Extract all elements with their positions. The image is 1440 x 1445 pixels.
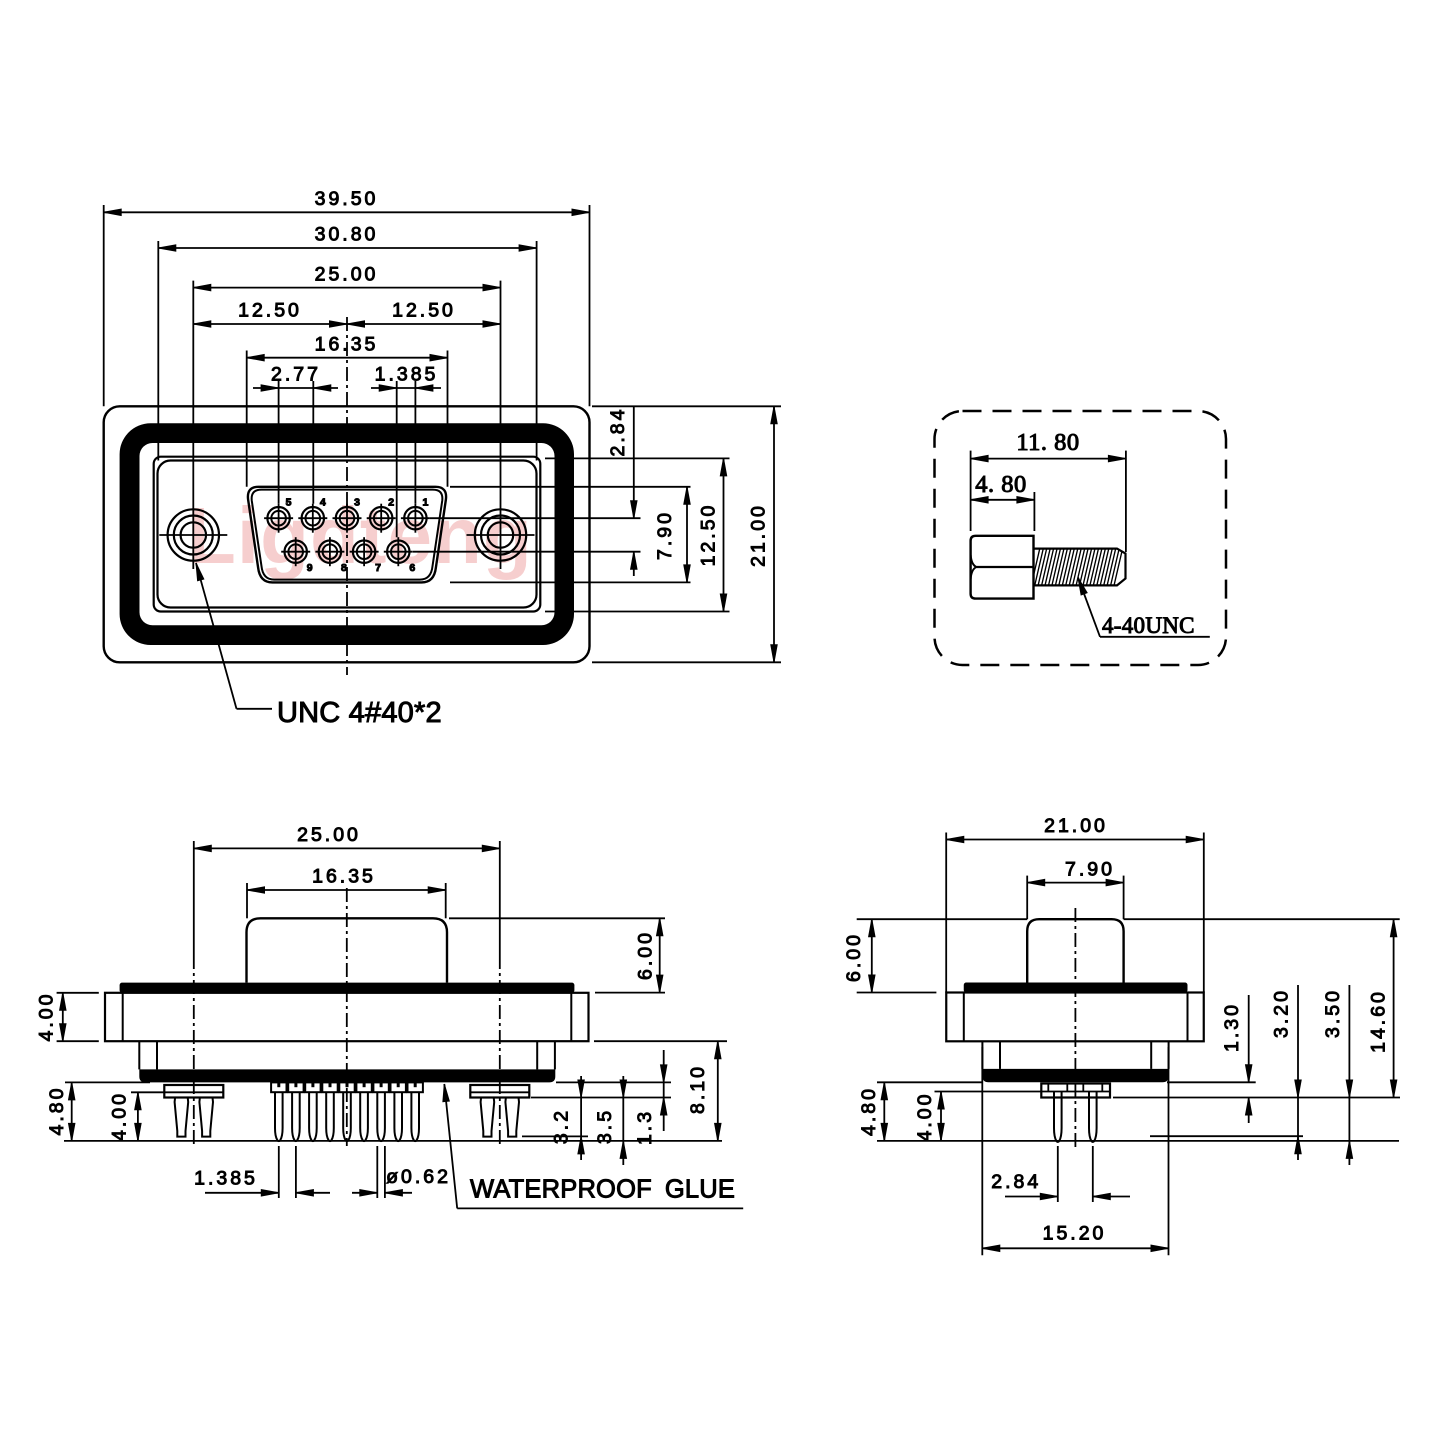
svg-text:3.20: 3.20: [1271, 988, 1293, 1038]
svg-text:3: 3: [354, 497, 360, 509]
svg-text:4.00: 4.00: [35, 992, 57, 1042]
svg-text:1: 1: [422, 497, 428, 509]
svg-text:6.00: 6.00: [634, 930, 656, 980]
svg-text:15.20: 15.20: [1043, 1223, 1107, 1245]
svg-text:25.00: 25.00: [315, 263, 379, 285]
svg-text:30.80: 30.80: [315, 224, 379, 246]
svg-text:7.90: 7.90: [1065, 858, 1115, 880]
svg-text:16.35: 16.35: [315, 333, 379, 355]
svg-text:4.00: 4.00: [109, 1091, 131, 1141]
svg-text:2: 2: [388, 497, 394, 509]
svg-text:4.80: 4.80: [858, 1086, 880, 1136]
svg-text:11. 80: 11. 80: [1016, 429, 1079, 456]
svg-text:1.30: 1.30: [1221, 1002, 1243, 1052]
svg-text:WATERPROOF GLUE: WATERPROOF GLUE: [470, 1176, 735, 1204]
svg-text:3.2: 3.2: [550, 1108, 572, 1144]
svg-text:3.50: 3.50: [1322, 988, 1344, 1038]
svg-text:8: 8: [341, 562, 347, 574]
svg-text:8.10: 8.10: [687, 1064, 709, 1114]
svg-text:6: 6: [409, 562, 415, 574]
svg-text:7.90: 7.90: [654, 510, 676, 560]
svg-text:9: 9: [307, 562, 313, 574]
svg-text:4-40UNC: 4-40UNC: [1102, 613, 1195, 638]
svg-text:12.50: 12.50: [697, 503, 719, 567]
svg-text:2.84: 2.84: [607, 407, 629, 457]
svg-text:2.84: 2.84: [991, 1171, 1041, 1193]
svg-text:5: 5: [286, 497, 292, 509]
svg-text:39.50: 39.50: [315, 188, 379, 210]
svg-text:1.385: 1.385: [375, 364, 439, 386]
svg-text:1.3: 1.3: [634, 1109, 656, 1145]
svg-text:6.00: 6.00: [843, 932, 865, 982]
svg-text:12.50: 12.50: [238, 300, 302, 322]
svg-text:3.5: 3.5: [594, 1108, 616, 1144]
svg-text:4: 4: [320, 497, 326, 509]
svg-text:2.77: 2.77: [271, 364, 321, 386]
svg-text:UNC 4#40*2: UNC 4#40*2: [277, 697, 442, 729]
svg-text:21.00: 21.00: [747, 503, 769, 567]
svg-text:4.00: 4.00: [914, 1092, 936, 1142]
svg-text:4.80: 4.80: [46, 1086, 68, 1136]
svg-text:14.60: 14.60: [1367, 989, 1389, 1053]
svg-text:4. 80: 4. 80: [975, 471, 1027, 498]
svg-text:21.00: 21.00: [1044, 815, 1108, 837]
svg-text:12.50: 12.50: [392, 300, 456, 322]
svg-text:ø0.62: ø0.62: [386, 1166, 451, 1188]
svg-text:7: 7: [375, 562, 381, 574]
svg-text:16.35: 16.35: [312, 866, 376, 888]
svg-text:25.00: 25.00: [297, 824, 361, 846]
svg-text:1.385: 1.385: [194, 1168, 258, 1190]
